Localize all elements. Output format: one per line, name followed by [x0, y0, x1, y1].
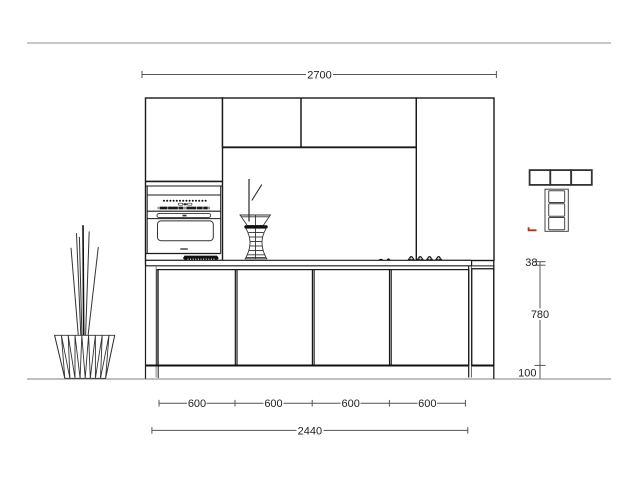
svg-text:38: 38 [525, 257, 537, 269]
svg-text:2700: 2700 [307, 70, 331, 82]
svg-text:600: 600 [418, 398, 436, 410]
svg-text:100: 100 [518, 368, 536, 380]
svg-text:600: 600 [264, 398, 282, 410]
svg-text:600: 600 [342, 398, 360, 410]
svg-text:2440: 2440 [298, 425, 322, 437]
svg-text:780: 780 [531, 309, 549, 321]
svg-text:600: 600 [188, 398, 206, 410]
